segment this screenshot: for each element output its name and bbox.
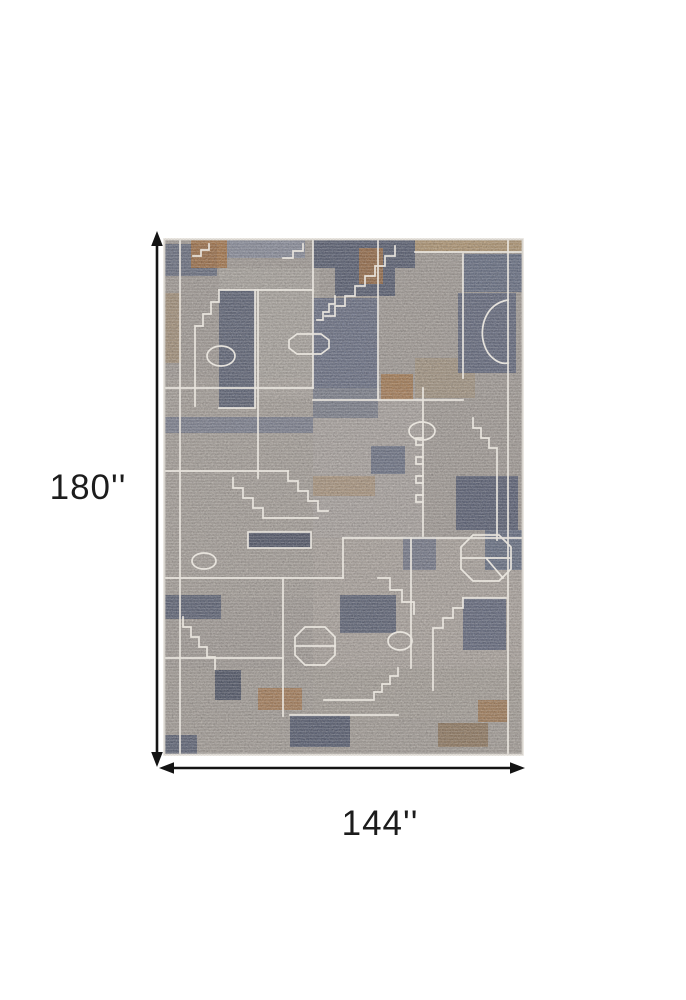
height-dimension-arrow	[146, 228, 168, 770]
arrow-right-icon	[510, 762, 525, 774]
dimension-diagram: 180'' 144''	[0, 0, 686, 1000]
arrow-up-icon	[151, 231, 163, 246]
height-label: 180''	[33, 468, 143, 508]
arrow-left-icon	[159, 762, 174, 774]
width-label: 144''	[325, 804, 435, 844]
rug-pattern-graphic	[163, 238, 524, 756]
width-dimension-arrow	[155, 757, 529, 779]
rug-image	[163, 238, 524, 756]
